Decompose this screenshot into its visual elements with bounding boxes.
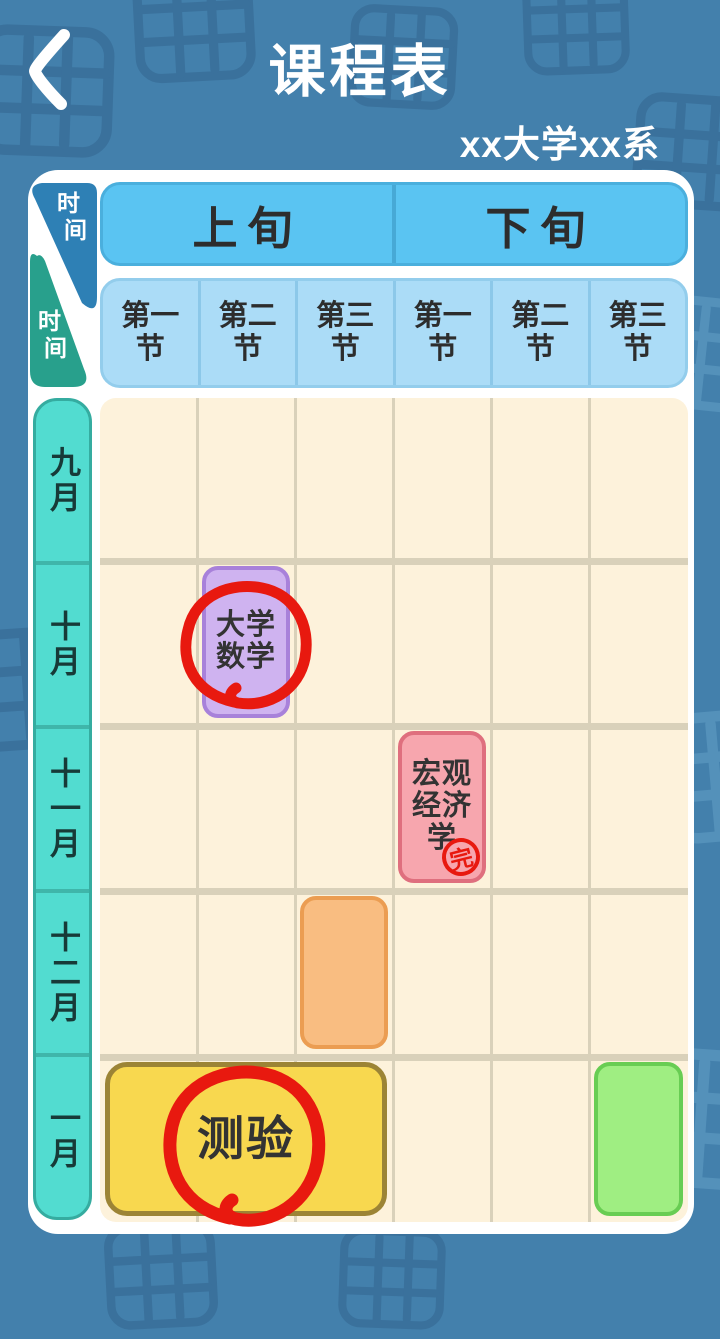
period-header-6: 第三 节	[588, 281, 686, 385]
schedule-panel: 时 间 时 间 上旬 下旬 第一 节 第二 节 第三 节 第一 节 第二 节 第…	[28, 170, 694, 1234]
grid-line	[588, 398, 591, 1222]
period-header-row: 第一 节 第二 节 第三 节 第一 节 第二 节 第三 节	[100, 278, 688, 388]
page-subtitle: xx大学xx系	[460, 114, 660, 168]
course-card-empty-green[interactable]	[594, 1062, 683, 1216]
page-title: 课程表	[0, 26, 720, 108]
group-header-first: 上旬	[103, 185, 392, 263]
course-label: 测验	[197, 1113, 295, 1165]
grid-line	[100, 723, 688, 730]
course-card-empty-orange[interactable]	[300, 896, 388, 1049]
course-card-math[interactable]: 大学 数学	[202, 566, 290, 718]
period-header-1: 第一 节	[103, 281, 198, 385]
period-header-2: 第二 节	[198, 281, 296, 385]
time-tab-label-char: 时	[57, 192, 80, 215]
period-header-4: 第一 节	[393, 281, 491, 385]
month-label-november: 十一月	[36, 725, 89, 889]
grid-line	[490, 398, 493, 1222]
table-doodle	[332, 1218, 452, 1338]
group-header-second: 下旬	[392, 185, 685, 263]
grid-line	[100, 1054, 688, 1061]
back-button[interactable]	[26, 28, 74, 112]
schedule-screen: { "screen": { "title": "课程表", "subtitle"…	[0, 0, 720, 1280]
month-label-january: 一月	[36, 1053, 89, 1217]
month-label-october: 十月	[36, 561, 89, 725]
chevron-left-icon	[35, 35, 64, 104]
time-tab-label-char: 时	[38, 310, 61, 333]
grid-line	[100, 888, 688, 895]
course-label: 宏观 经济 学	[412, 759, 472, 855]
course-label: 大学 数学	[216, 610, 276, 674]
grid-line	[392, 398, 395, 1222]
course-card-macroeconomics[interactable]: 宏观 经济 学	[398, 731, 486, 883]
time-tab-label-char: 间	[64, 219, 87, 242]
period-header-5: 第二 节	[490, 281, 588, 385]
group-header-row: 上旬 下旬	[100, 182, 688, 266]
grid-line	[100, 558, 688, 565]
period-header-3: 第三 节	[295, 281, 393, 385]
month-label-december: 十二月	[36, 889, 89, 1053]
month-label-september: 九月	[36, 401, 89, 561]
course-card-quiz[interactable]: 测验	[105, 1062, 387, 1216]
time-tab-label-char: 间	[44, 337, 67, 360]
month-column: 九月 十月 十一月 十二月 一月	[33, 398, 92, 1220]
